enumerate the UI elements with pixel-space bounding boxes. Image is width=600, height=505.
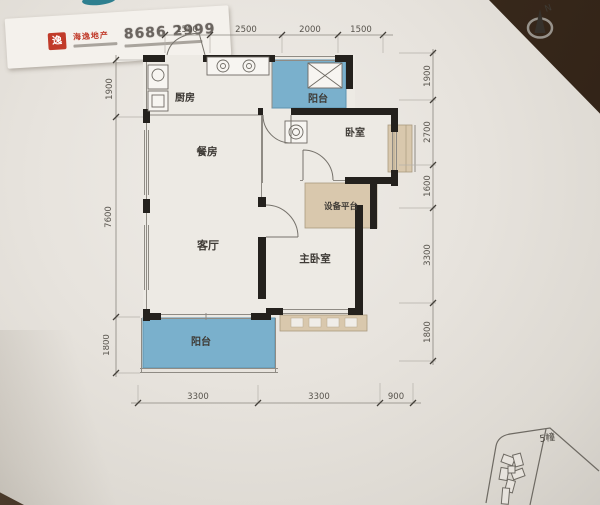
site-plan-label: 5幢 <box>539 431 557 445</box>
dim-right-3: 1600 <box>423 175 433 197</box>
building-cluster-icon <box>499 453 525 504</box>
dim-bottom-2: 3300 <box>308 392 330 402</box>
floor-plan: 1500 2500 2000 1500 3300 3300 900 1900 7… <box>103 25 443 415</box>
site-plan-sketch: 5幢 <box>466 416 600 505</box>
dim-bottom-1: 3300 <box>187 392 209 402</box>
dim-top-2: 2500 <box>235 25 257 35</box>
dim-top-3: 2000 <box>299 25 321 35</box>
bay-window <box>280 315 367 331</box>
room-label-master: 主卧室 <box>299 252 331 265</box>
dim-top-4: 1500 <box>350 25 372 35</box>
brand-logo-icon: 逸 <box>48 32 67 50</box>
dim-left-3: 1800 <box>103 334 112 356</box>
entry-door-arc <box>167 33 205 55</box>
sink-icon <box>148 65 168 111</box>
room-label-dining: 餐房 <box>196 145 218 158</box>
compass-label: N <box>544 3 554 15</box>
room-label-balcony-bottom: 阳台 <box>191 335 211 348</box>
dim-right-4: 3300 <box>423 244 433 266</box>
compass-needle-icon <box>535 9 546 33</box>
room-label-bedroom: 卧室 <box>345 126 365 139</box>
washing-machine-icon <box>308 63 342 88</box>
basin-icon <box>285 121 307 143</box>
room-label-balcony-top: 阳台 <box>308 92 328 105</box>
room-label-kitchen: 厨房 <box>175 91 195 104</box>
dim-right-5: 1800 <box>423 321 433 343</box>
dim-right-1: 1900 <box>423 65 433 87</box>
dim-right-2: 2700 <box>423 121 433 143</box>
dim-left-2: 7600 <box>104 206 114 228</box>
photo-of-floorplan: 逸 海逸地产 8686 2999 N <box>0 0 600 505</box>
dim-left-1: 1900 <box>105 78 115 100</box>
compass-icon: N <box>518 2 562 46</box>
dim-top-1: 1500 <box>176 25 198 35</box>
room-label-equipment: 设备平台 <box>324 201 359 212</box>
stove-icon <box>207 57 269 75</box>
room-label-living: 客厅 <box>196 238 219 252</box>
dim-bottom-3: 900 <box>388 392 404 402</box>
